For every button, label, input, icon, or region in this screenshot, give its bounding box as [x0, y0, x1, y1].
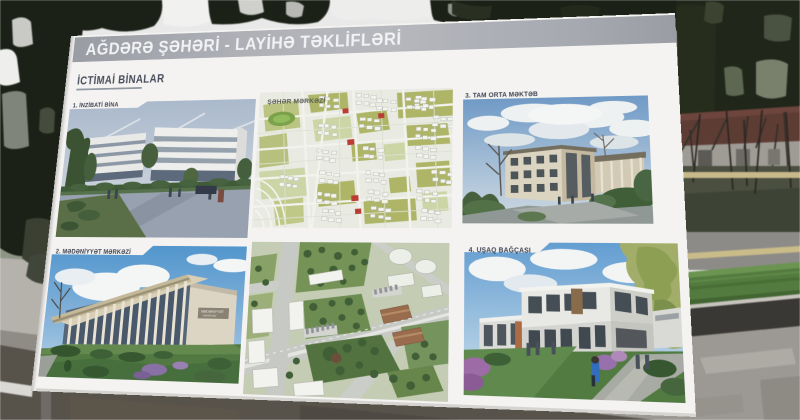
svg-text:MƏRKƏZİ: MƏRKƏZİ	[203, 314, 217, 318]
